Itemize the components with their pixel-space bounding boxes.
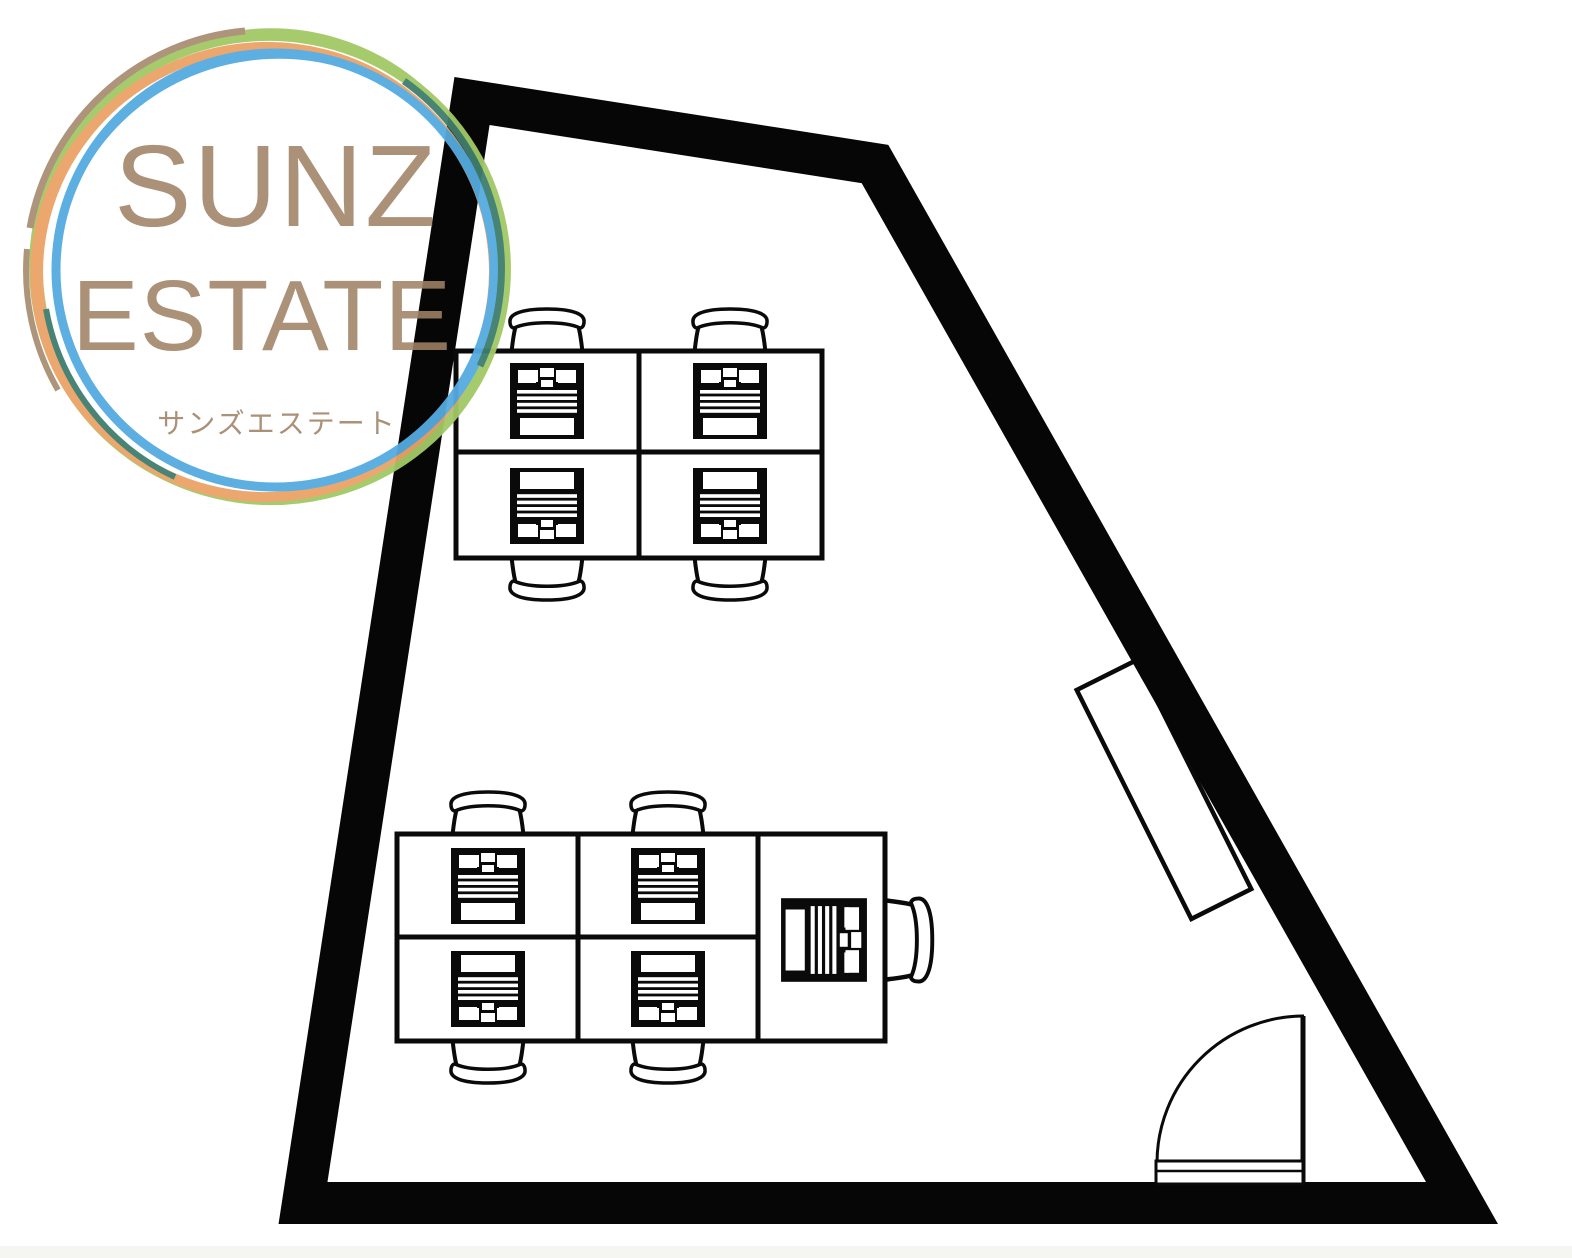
workstation-icon	[631, 848, 705, 924]
logo-subtitle-japanese: サンズエステート	[157, 408, 396, 439]
workstation-icon	[631, 951, 705, 1027]
door-threshold	[1156, 1161, 1303, 1184]
workstation-icon	[693, 468, 767, 544]
logo-wordmark-line2: ESTATE	[72, 260, 452, 372]
workstation-icon	[510, 468, 584, 544]
footer-strip	[0, 1246, 1572, 1258]
floor-plan-canvas: SUNZ ESTATE サンズエステート	[0, 0, 1572, 1258]
lower-desk-cluster	[397, 792, 932, 1083]
upper-desk-cluster	[456, 309, 822, 600]
workstation-icon	[693, 363, 767, 439]
computer-icon	[781, 898, 867, 982]
logo-wordmark-line1: SUNZ	[114, 121, 438, 251]
workstation-icon	[451, 951, 525, 1027]
floor-plan-page: SUNZ ESTATE サンズエステート	[0, 0, 1572, 1258]
workstation-icon	[451, 848, 525, 924]
workstation-icon	[510, 363, 584, 439]
